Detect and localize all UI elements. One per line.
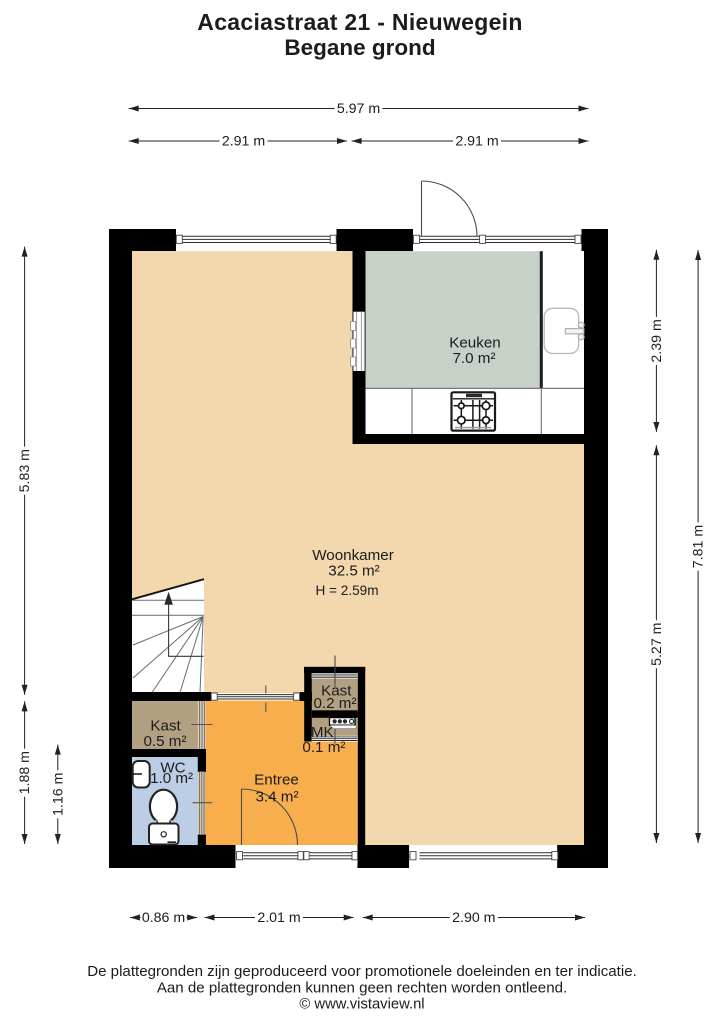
svg-text:0.5 m²: 0.5 m²	[143, 733, 186, 750]
svg-text:5.97 m: 5.97 m	[337, 101, 380, 117]
svg-text:1.0 m²: 1.0 m²	[150, 770, 193, 787]
svg-text:Keuken: Keuken	[449, 335, 501, 352]
svg-text:Acaciastraat 21 - Nieuwegein: Acaciastraat 21 - Nieuwegein	[197, 9, 522, 35]
svg-text:Kast: Kast	[150, 718, 181, 735]
svg-text:Begane grond: Begane grond	[284, 35, 435, 60]
svg-text:5.27 m: 5.27 m	[649, 623, 665, 666]
svg-text:0.2 m²: 0.2 m²	[313, 695, 356, 712]
svg-text:© www.vistaview.nl: © www.vistaview.nl	[299, 997, 424, 1013]
svg-text:3.4 m²: 3.4 m²	[255, 789, 298, 806]
svg-text:H = 2.59m: H = 2.59m	[315, 583, 378, 598]
svg-text:1.16 m: 1.16 m	[50, 773, 66, 816]
svg-text:Aan de plattegronden kunnen ge: Aan de plattegronden kunnen geen rechten…	[157, 980, 567, 997]
svg-text:7.81 m: 7.81 m	[691, 525, 707, 568]
svg-text:7.0 m²: 7.0 m²	[452, 350, 495, 367]
svg-text:Woonkamer: Woonkamer	[312, 547, 394, 564]
svg-text:2.91 m: 2.91 m	[455, 134, 498, 150]
svg-text:2.39 m: 2.39 m	[649, 319, 665, 362]
svg-text:1.88 m: 1.88 m	[17, 751, 33, 794]
svg-text:5.83 m: 5.83 m	[17, 449, 33, 492]
svg-text:2.90 m: 2.90 m	[452, 910, 495, 926]
svg-text:2.91 m: 2.91 m	[222, 134, 265, 150]
svg-text:32.5 m²: 32.5 m²	[328, 563, 380, 580]
svg-text:De plattegronden zijn geproduc: De plattegronden zijn geproduceerd voor …	[87, 963, 637, 980]
svg-text:Entree: Entree	[254, 772, 299, 789]
svg-text:0.1 m²: 0.1 m²	[302, 739, 345, 756]
svg-text:0.86 m: 0.86 m	[142, 910, 185, 926]
svg-text:2.01 m: 2.01 m	[257, 910, 300, 926]
